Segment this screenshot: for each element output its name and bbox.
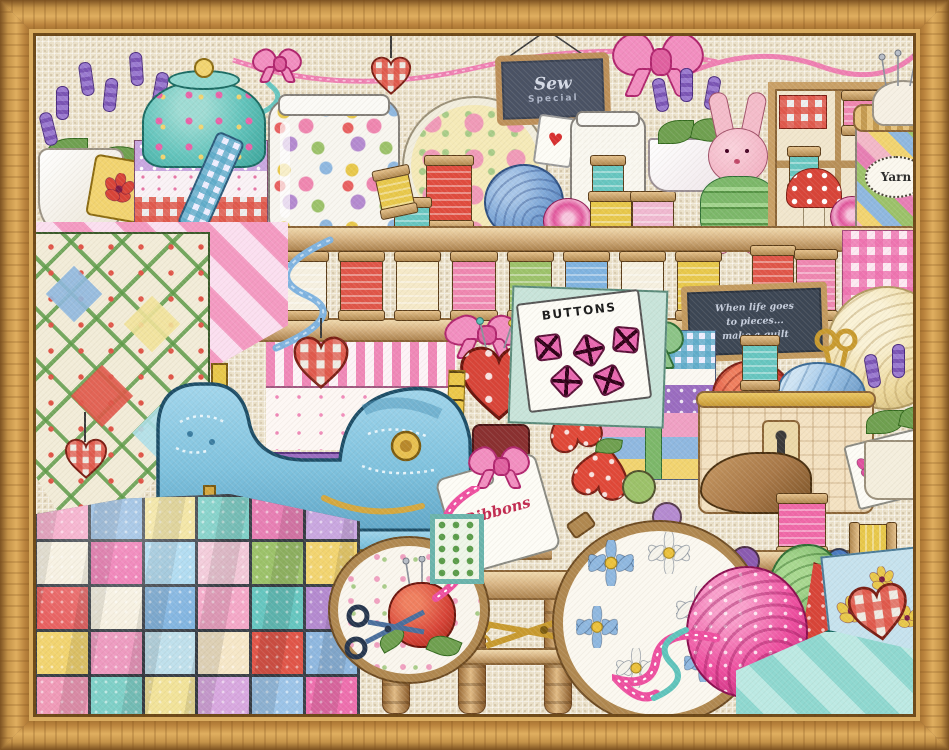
blue-daisy-icon	[588, 540, 634, 586]
oak-frame-right	[913, 0, 949, 750]
heart-string	[390, 34, 392, 58]
pink-button	[548, 363, 585, 400]
pink-button	[612, 326, 640, 354]
ribbon-spool-bow	[468, 444, 530, 486]
oak-frame-top	[0, 0, 949, 36]
sign-line1: Sew	[534, 73, 572, 94]
pink-button	[591, 363, 626, 398]
scene: Sew Special ♥	[0, 0, 949, 750]
sign-line2: Special	[528, 93, 579, 105]
red-thread-spool	[426, 156, 472, 230]
heart-icon: ♥	[546, 131, 564, 151]
gingham-heart-garland	[370, 56, 412, 96]
pink-button	[571, 332, 607, 368]
patchwork-quilt-draped	[34, 494, 360, 722]
garland-bow-left	[252, 46, 302, 80]
blue-scissors-icon	[336, 598, 428, 664]
buttons-card: BUTTONS	[516, 289, 652, 413]
basket-teal-spool	[742, 336, 778, 390]
gingham-heart-ornament	[64, 438, 108, 480]
gingham-box	[779, 95, 827, 129]
yarn-label-text: Yarn	[881, 170, 911, 184]
yellow-thread-spool	[373, 165, 416, 219]
basket-rim	[696, 391, 876, 408]
oak-frame-left	[0, 0, 36, 750]
green-clover-frame	[430, 514, 484, 584]
pink-button	[534, 333, 563, 362]
green-button	[622, 470, 656, 504]
teal-ribbon-curl-bottom	[636, 626, 700, 704]
mushroom-cap	[786, 168, 842, 208]
teapot	[142, 80, 266, 168]
white-daisy-icon	[648, 532, 690, 574]
jar-lid	[278, 94, 390, 116]
quilt-patch-blue	[46, 266, 103, 323]
hoop-screw	[565, 510, 597, 540]
jar-shine	[280, 122, 290, 218]
teapot-knob	[194, 58, 214, 78]
oak-frame-bottom	[0, 714, 949, 750]
cross-stitch-artwork: Sew Special ♥	[0, 0, 949, 750]
jar-rim	[576, 111, 640, 127]
red-bloom-icon	[100, 170, 137, 207]
heart-over-window-string	[320, 318, 322, 338]
